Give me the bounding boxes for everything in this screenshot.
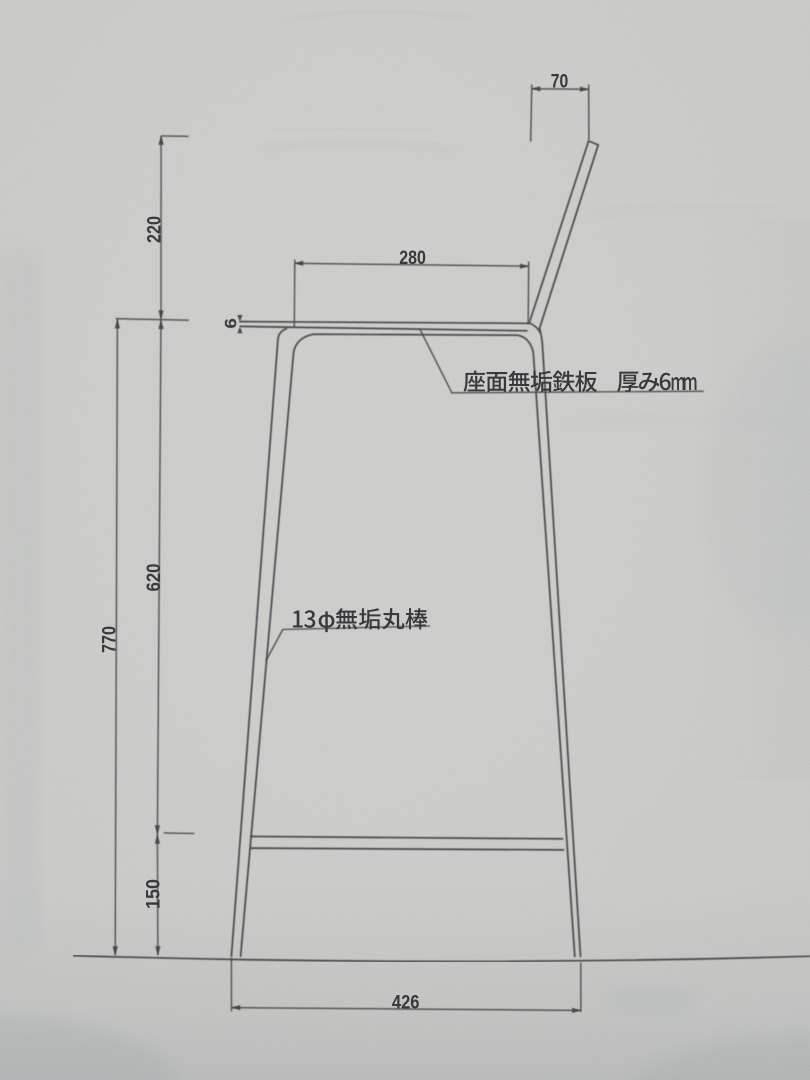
svg-text:70: 70 xyxy=(551,71,569,92)
svg-text:426: 426 xyxy=(392,993,420,1014)
svg-text:220: 220 xyxy=(144,216,165,243)
svg-text:150: 150 xyxy=(144,879,165,909)
svg-text:280: 280 xyxy=(399,248,426,269)
svg-text:6: 6 xyxy=(221,318,240,329)
svg-text:620: 620 xyxy=(144,564,165,592)
svg-text:770: 770 xyxy=(100,626,121,653)
